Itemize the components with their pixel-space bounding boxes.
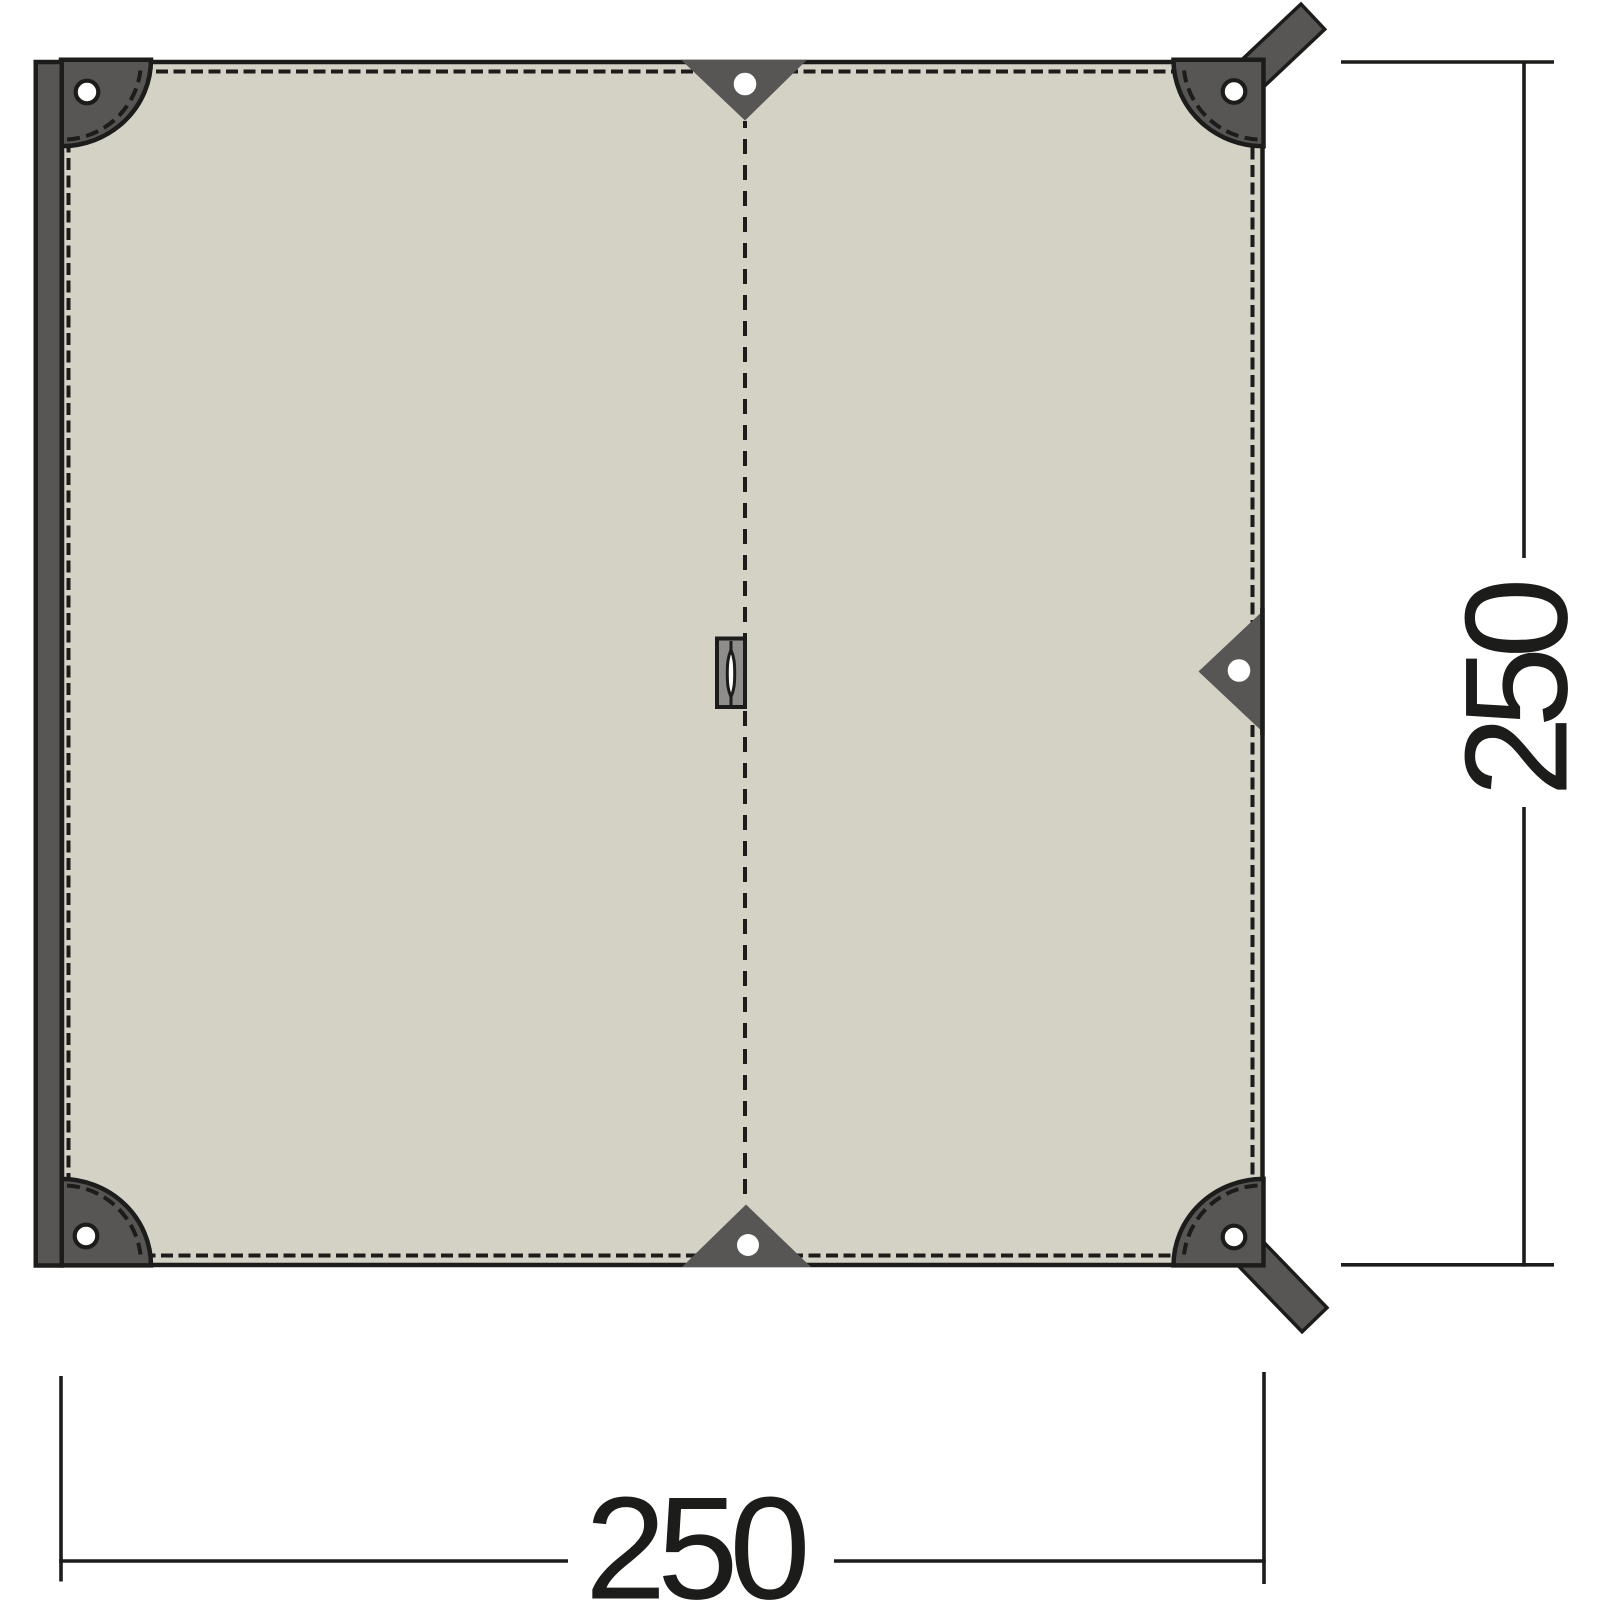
svg-text:250: 250 [585, 1467, 805, 1600]
svg-text:250: 250 [1435, 583, 1598, 797]
